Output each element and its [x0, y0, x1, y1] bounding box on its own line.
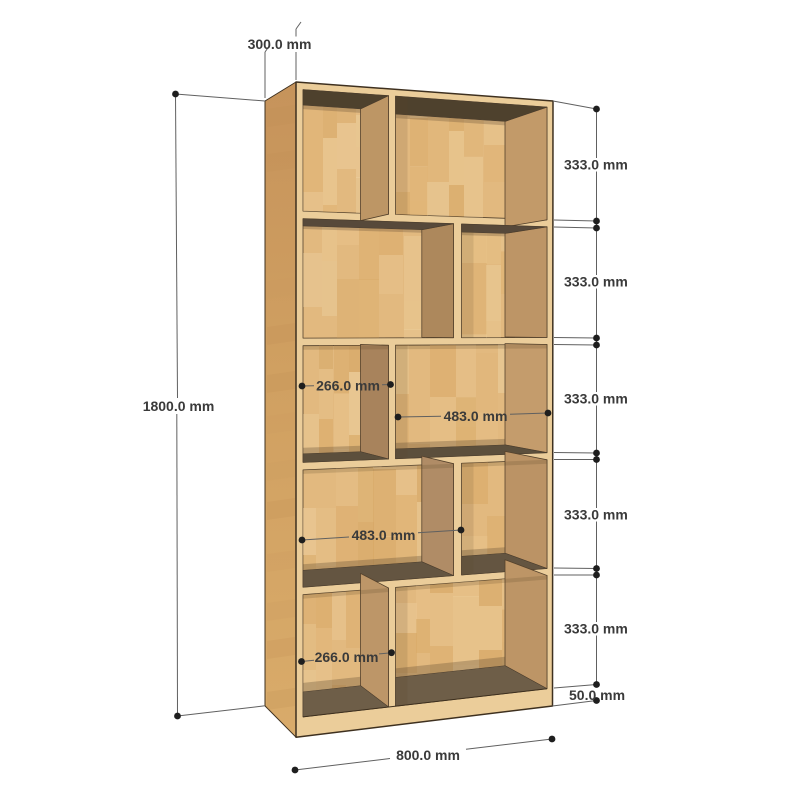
svg-text:800.0 mm: 800.0 mm — [396, 747, 460, 763]
svg-text:333.0 mm: 333.0 mm — [564, 507, 628, 523]
svg-text:333.0 mm: 333.0 mm — [564, 391, 628, 407]
svg-text:333.0 mm: 333.0 mm — [564, 157, 628, 173]
svg-text:483.0 mm: 483.0 mm — [352, 527, 416, 543]
svg-text:483.0 mm: 483.0 mm — [444, 408, 508, 424]
svg-text:333.0 mm: 333.0 mm — [564, 621, 628, 637]
svg-text:1800.0 mm: 1800.0 mm — [143, 398, 215, 414]
svg-text:300.0 mm: 300.0 mm — [248, 36, 312, 52]
svg-text:333.0 mm: 333.0 mm — [564, 274, 628, 290]
svg-text:266.0 mm: 266.0 mm — [316, 378, 380, 394]
svg-text:50.0 mm: 50.0 mm — [569, 687, 625, 703]
svg-text:266.0 mm: 266.0 mm — [315, 649, 379, 665]
